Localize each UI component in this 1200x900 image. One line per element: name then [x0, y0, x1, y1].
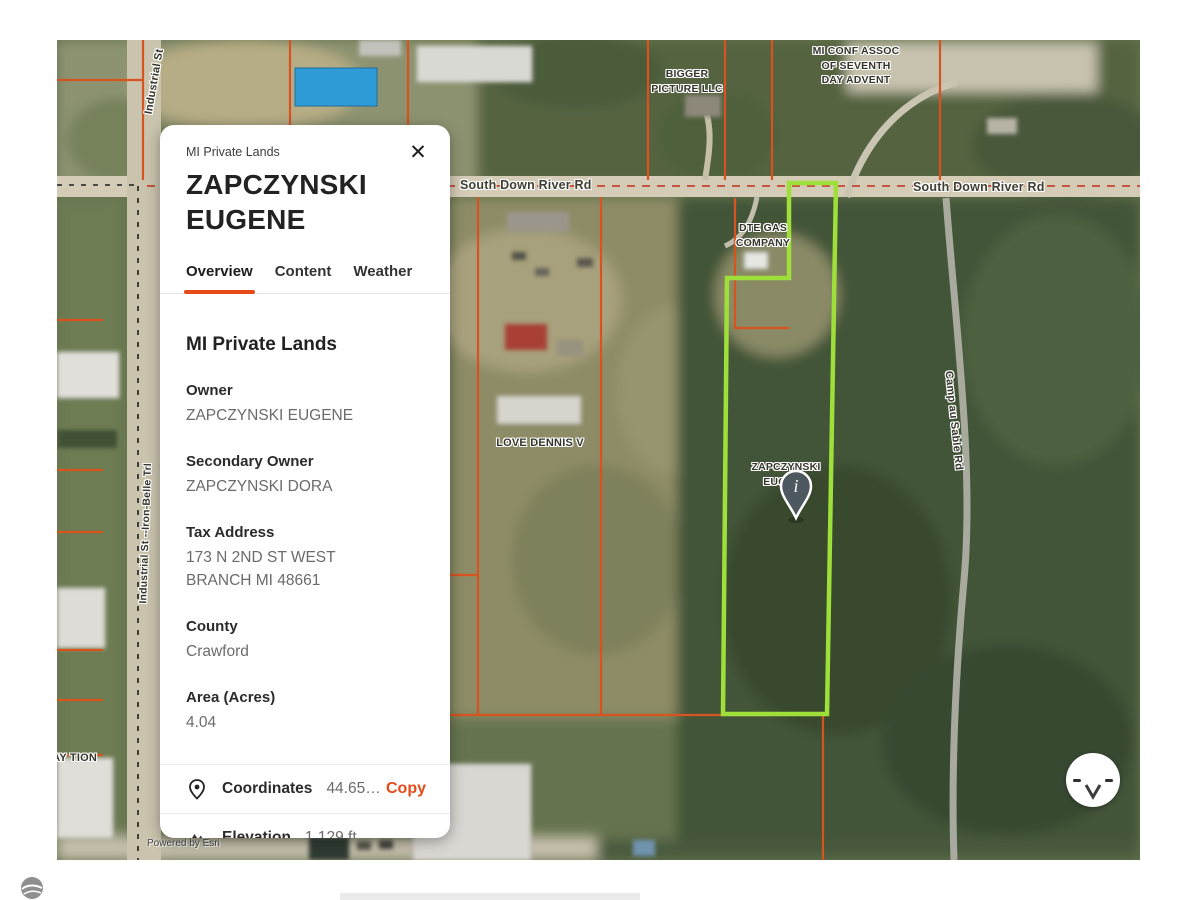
tab-weather[interactable]: Weather: [353, 263, 412, 280]
chevron-down-icon: [1066, 753, 1120, 807]
tab-overview[interactable]: Overview: [186, 263, 253, 280]
field-value: 173 N 2ND ST WEST BRANCH MI 48661: [186, 546, 391, 592]
coordinates-row: Coordinates 44.65… Copy: [160, 764, 450, 813]
copy-coordinates-button[interactable]: Copy: [386, 780, 426, 798]
coordinates-value: 44.65…: [326, 780, 380, 798]
mountain-icon: [186, 827, 208, 838]
location-pin-icon: [186, 778, 208, 800]
parcel-label-dte-gas: DTE GAS COMPANY: [713, 221, 813, 250]
parcel-label-bigger-picture: BIGGER PICTURE LLC: [642, 67, 732, 96]
parcel-label-mi-conf: MI CONF ASSOC OF SEVENTH DAY ADVENT: [810, 44, 902, 88]
card-source-label: MI Private Lands: [186, 145, 426, 159]
field-secondary-owner: Secondary Owner ZAPCZYNSKI DORA: [186, 453, 426, 498]
app-window: South Down River Rd South Down River Rd …: [0, 0, 1200, 900]
field-county: County Crawford: [186, 618, 426, 663]
elevation-row: Elevation 1,129 ft: [160, 813, 450, 838]
field-label: Owner: [186, 382, 426, 400]
bottom-scroll-strip: [340, 893, 640, 900]
field-label: Secondary Owner: [186, 453, 426, 471]
section-title: MI Private Lands: [186, 334, 426, 356]
field-tax-address: Tax Address 173 N 2ND ST WEST BRANCH MI …: [186, 524, 426, 592]
field-label: Tax Address: [186, 524, 426, 542]
field-value: ZAPCZYNSKI DORA: [186, 475, 391, 498]
field-label: County: [186, 618, 426, 636]
marker-info-glyph: i: [793, 476, 798, 496]
parcel-label-love-dennis: LOVE DENNIS V: [490, 436, 590, 451]
field-value: 4.04: [186, 711, 391, 734]
road-label-south-down-river-left: South Down River Rd: [460, 177, 592, 195]
card-tabs: Overview Content Weather: [160, 263, 450, 294]
field-value: Crawford: [186, 640, 391, 663]
map-marker-pin[interactable]: i: [761, 446, 831, 526]
field-label: Area (Acres): [186, 689, 426, 707]
close-icon[interactable]: ✕: [404, 139, 432, 167]
tab-content[interactable]: Content: [275, 263, 332, 280]
field-value: ZAPCZYNSKI EUGENE: [186, 404, 391, 427]
parcel-info-card: MI Private Lands ✕ ZAPCZYNSKI EUGENE Ove…: [160, 125, 450, 838]
road-label-south-down-river-right: South Down River Rd: [913, 179, 1045, 197]
parcel-label-left-edge-partial: AY TION: [57, 751, 97, 766]
field-area-acres: Area (Acres) 4.04: [186, 689, 426, 734]
coordinates-label: Coordinates: [222, 780, 312, 798]
card-meta-rows: Coordinates 44.65… Copy Elevation 1,129 …: [160, 764, 450, 838]
globe-logo-icon: [20, 876, 44, 900]
parcel-owner-title: ZAPCZYNSKI EUGENE: [186, 167, 426, 237]
elevation-value: 1,129 ft: [305, 829, 357, 838]
compass-button[interactable]: [1066, 753, 1120, 807]
elevation-label: Elevation: [222, 829, 291, 838]
map-attribution: Powered by Esri: [147, 838, 220, 849]
field-owner: Owner ZAPCZYNSKI EUGENE: [186, 382, 426, 427]
